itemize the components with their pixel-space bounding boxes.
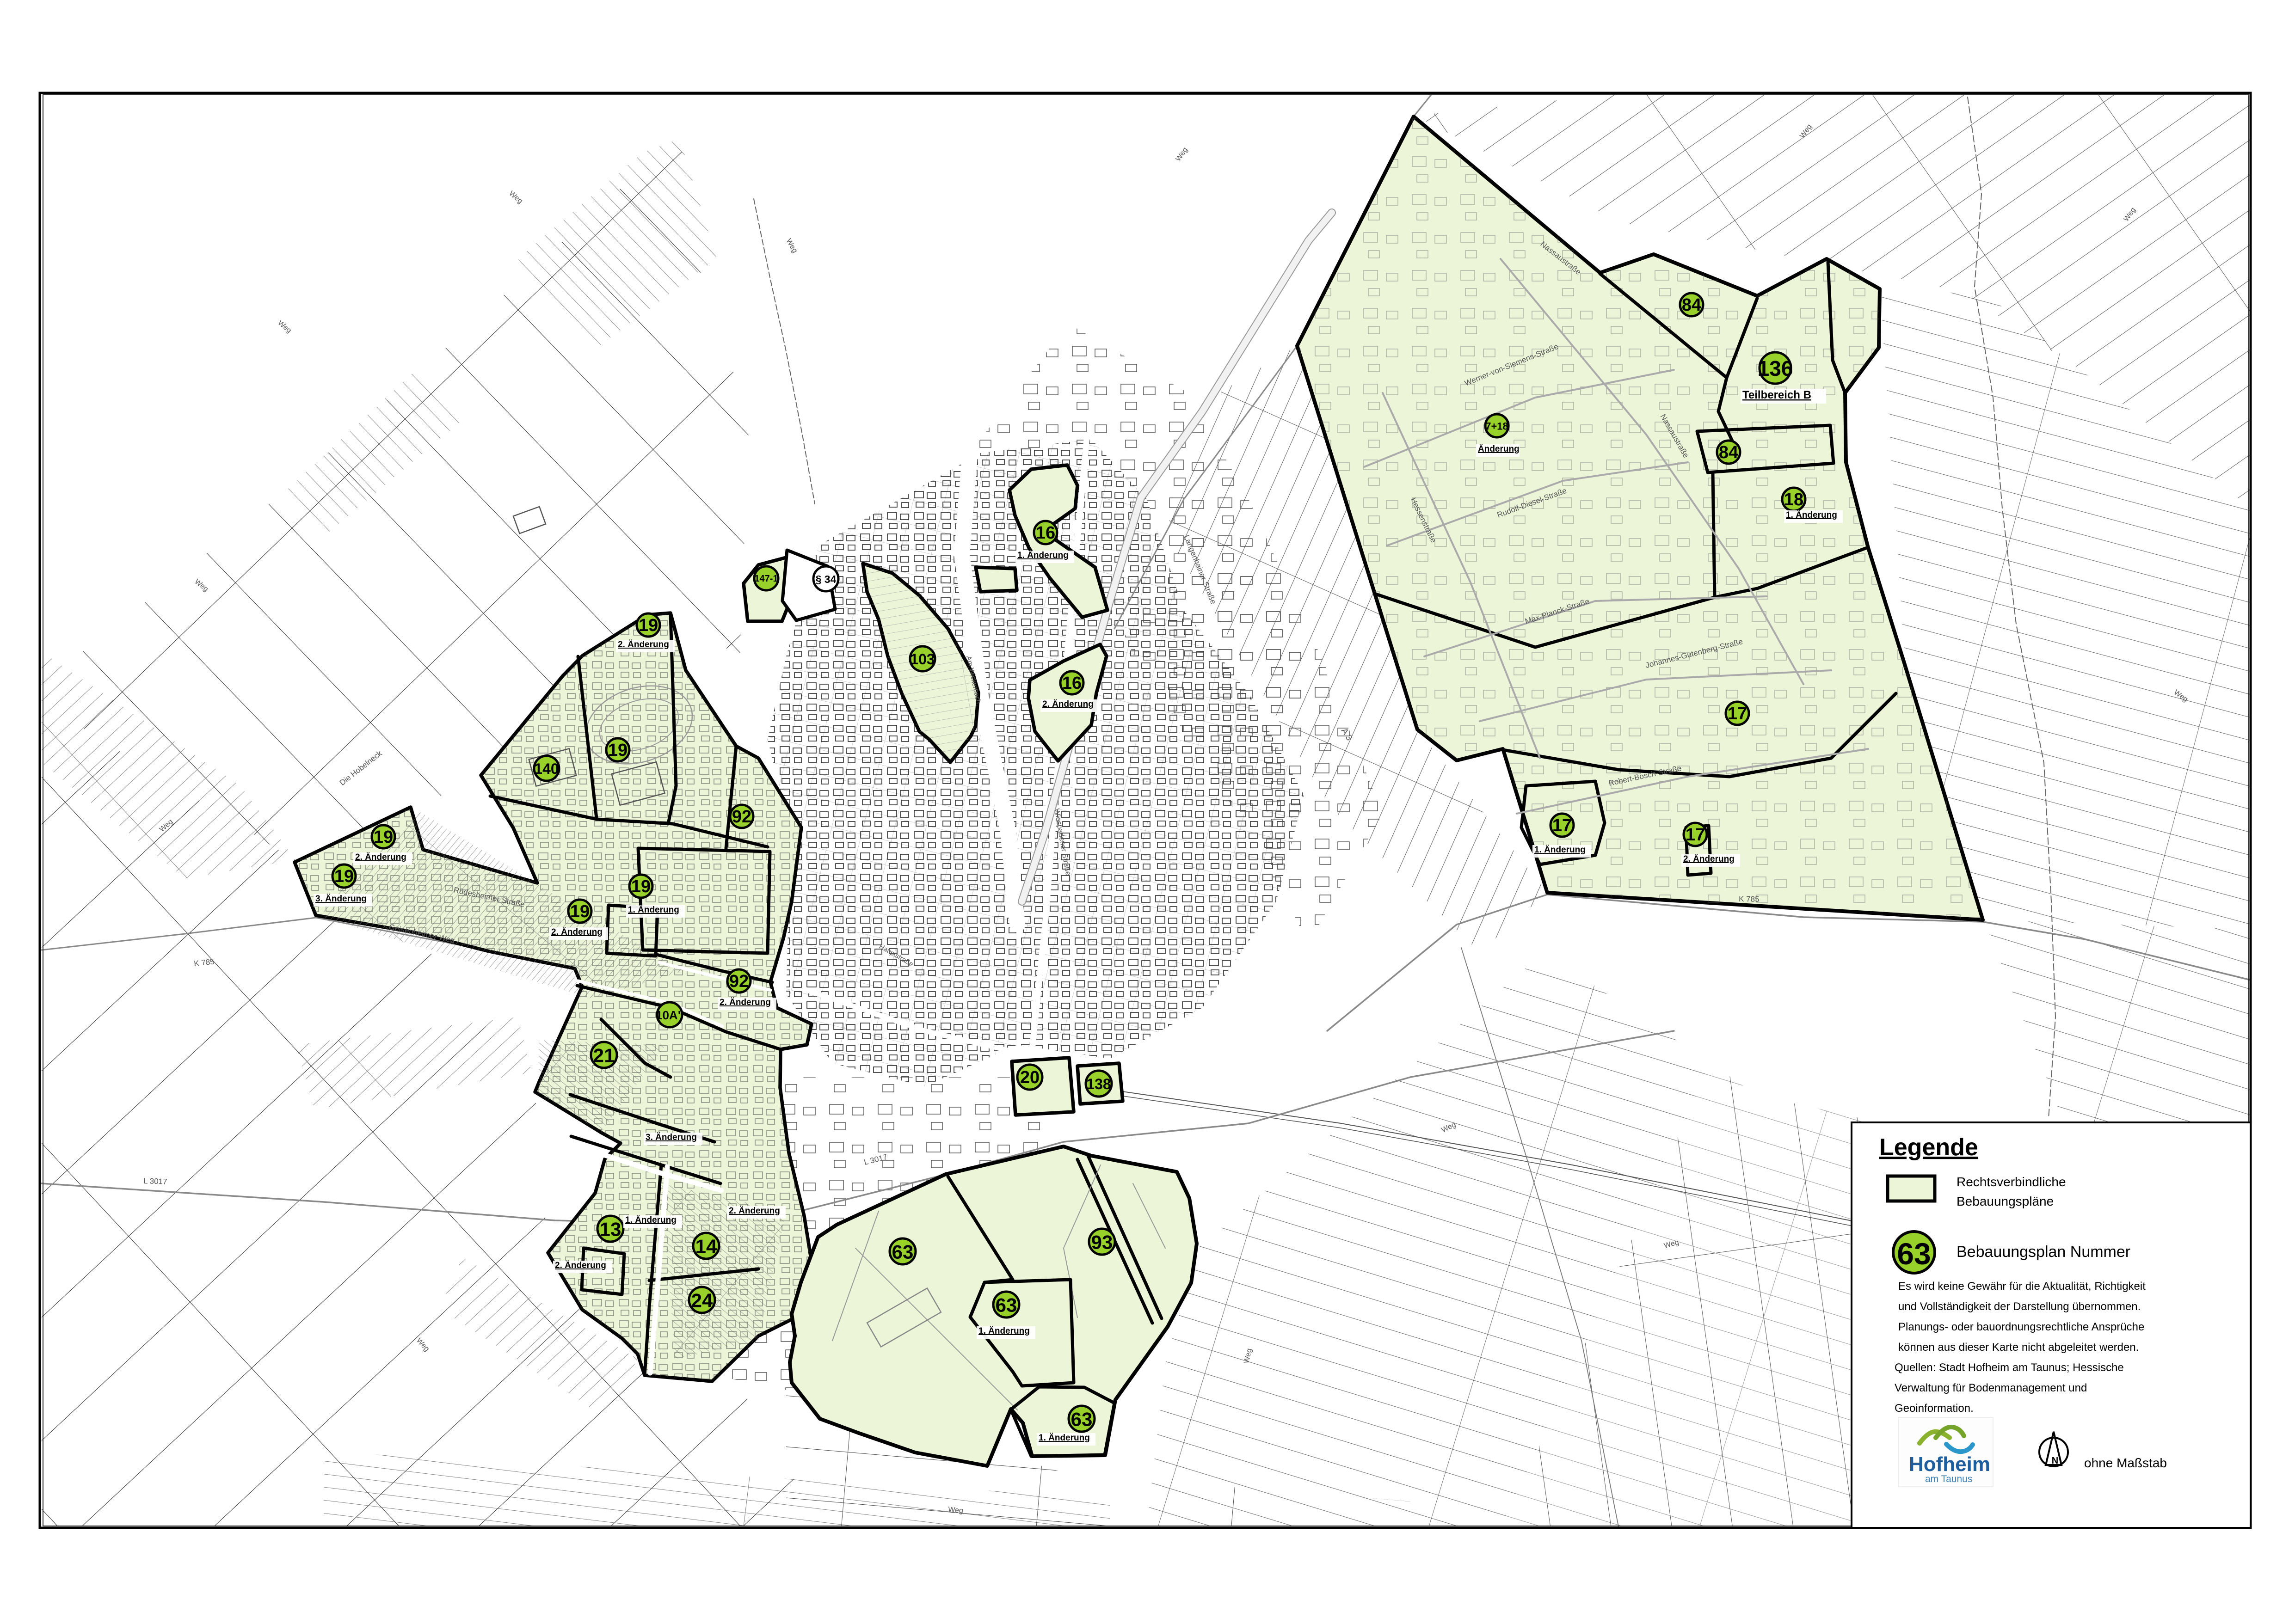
svg-text:93: 93 <box>1091 1232 1113 1253</box>
svg-text:1. Änderung: 1. Änderung <box>628 905 679 915</box>
svg-text:21: 21 <box>593 1045 615 1066</box>
svg-text:und Vollständigkeit der Darste: und Vollständigkeit der Darstellung über… <box>1898 1300 2141 1313</box>
svg-text:2. Änderung: 2. Änderung <box>551 927 603 937</box>
svg-text:84: 84 <box>1719 443 1738 462</box>
svg-text:92: 92 <box>732 807 751 827</box>
svg-text:14: 14 <box>695 1236 717 1257</box>
svg-text:17: 17 <box>1552 816 1572 835</box>
svg-text:§ 34: § 34 <box>816 573 837 585</box>
svg-text:84: 84 <box>1682 295 1701 315</box>
svg-text:2. Änderung: 2. Änderung <box>355 852 406 862</box>
svg-text:Weg: Weg <box>276 319 293 335</box>
svg-text:Weg: Weg <box>507 190 524 205</box>
svg-text:2. Änderung: 2. Änderung <box>555 1261 606 1270</box>
svg-text:Verwaltung für Bodenmanagement: Verwaltung für Bodenmanagement und <box>1895 1382 2087 1394</box>
svg-text:N: N <box>2052 1456 2058 1466</box>
svg-text:10A": 10A" <box>656 1008 683 1022</box>
svg-text:L 3017: L 3017 <box>143 1177 167 1186</box>
svg-text:147-1: 147-1 <box>754 574 778 584</box>
svg-text:2. Änderung: 2. Änderung <box>729 1206 780 1216</box>
svg-text:Bebauungspläne: Bebauungspläne <box>1957 1194 2054 1208</box>
svg-text:63: 63 <box>1071 1409 1093 1430</box>
svg-text:1. Änderung: 1. Änderung <box>1039 1433 1090 1443</box>
svg-text:2. Änderung: 2. Änderung <box>720 998 771 1007</box>
svg-text:16: 16 <box>1036 523 1055 543</box>
svg-text:1. Änderung: 1. Änderung <box>978 1326 1030 1336</box>
svg-text:19: 19 <box>374 827 393 847</box>
svg-text:1. Änderung: 1. Änderung <box>1534 845 1586 855</box>
svg-text:13: 13 <box>600 1219 621 1240</box>
svg-text:am Taunus: am Taunus <box>1925 1474 1972 1484</box>
svg-text:19: 19 <box>608 741 628 760</box>
svg-text:Weg: Weg <box>948 1506 964 1515</box>
svg-text:20: 20 <box>1020 1068 1040 1087</box>
svg-text:92: 92 <box>729 972 749 991</box>
svg-text:17: 17 <box>1728 704 1747 723</box>
svg-text:Es wird keine Gewähr für die A: Es wird keine Gewähr für die Aktualität,… <box>1898 1280 2146 1293</box>
svg-text:19: 19 <box>631 877 651 896</box>
svg-text:19: 19 <box>334 867 354 886</box>
svg-text:Bebauungsplan Nummer: Bebauungsplan Nummer <box>1957 1243 2130 1261</box>
svg-text:Planungs- oder bauordnungsrech: Planungs- oder bauordnungsrechtliche Ans… <box>1898 1321 2144 1333</box>
svg-text:138: 138 <box>1086 1076 1111 1092</box>
svg-text:24: 24 <box>691 1290 713 1311</box>
svg-text:3. Änderung: 3. Änderung <box>315 894 367 904</box>
svg-text:3. Änderung: 3. Änderung <box>646 1133 697 1142</box>
svg-text:1. Änderung: 1. Änderung <box>1786 510 1837 520</box>
svg-text:16: 16 <box>1062 674 1082 693</box>
svg-text:19: 19 <box>570 902 590 921</box>
svg-text:1. Änderung: 1. Änderung <box>1017 551 1069 560</box>
svg-text:140: 140 <box>534 760 559 777</box>
svg-text:18: 18 <box>1784 490 1803 509</box>
svg-text:2. Änderung: 2. Änderung <box>1042 699 1094 709</box>
svg-text:Hofheim: Hofheim <box>1909 1453 1990 1476</box>
svg-text:19: 19 <box>639 616 658 635</box>
svg-text:63: 63 <box>1897 1237 1931 1271</box>
svg-text:2. Änderung: 2. Änderung <box>618 640 669 650</box>
svg-text:2. Änderung: 2. Änderung <box>1683 854 1735 864</box>
svg-text:Teilbereich B: Teilbereich B <box>1742 389 1811 401</box>
svg-text:103: 103 <box>910 651 935 668</box>
svg-text:17: 17 <box>1686 825 1705 845</box>
svg-text:7+18: 7+18 <box>1485 421 1508 432</box>
svg-text:ohne Maßstab: ohne Maßstab <box>2084 1456 2167 1470</box>
svg-text:63: 63 <box>892 1241 914 1263</box>
svg-text:Geoinformation.: Geoinformation. <box>1895 1402 1974 1415</box>
svg-text:Legende: Legende <box>1879 1134 1978 1161</box>
svg-text:K 785: K 785 <box>1739 895 1760 904</box>
svg-text:Änderung: Änderung <box>1478 444 1520 454</box>
svg-text:Rechtsverbindliche: Rechtsverbindliche <box>1957 1175 2066 1189</box>
svg-text:Weg: Weg <box>1174 146 1189 163</box>
svg-text:136: 136 <box>1758 356 1793 380</box>
svg-text:63: 63 <box>996 1294 1017 1316</box>
svg-text:können aus dieser Karte nicht: können aus dieser Karte nicht abgeleitet… <box>1898 1341 2139 1354</box>
svg-text:Quellen: Stadt Hofheim am Taun: Quellen: Stadt Hofheim am Taunus; Hessis… <box>1895 1361 2124 1374</box>
svg-text:1. Änderung: 1. Änderung <box>625 1215 677 1225</box>
svg-text:Weg: Weg <box>785 238 799 255</box>
